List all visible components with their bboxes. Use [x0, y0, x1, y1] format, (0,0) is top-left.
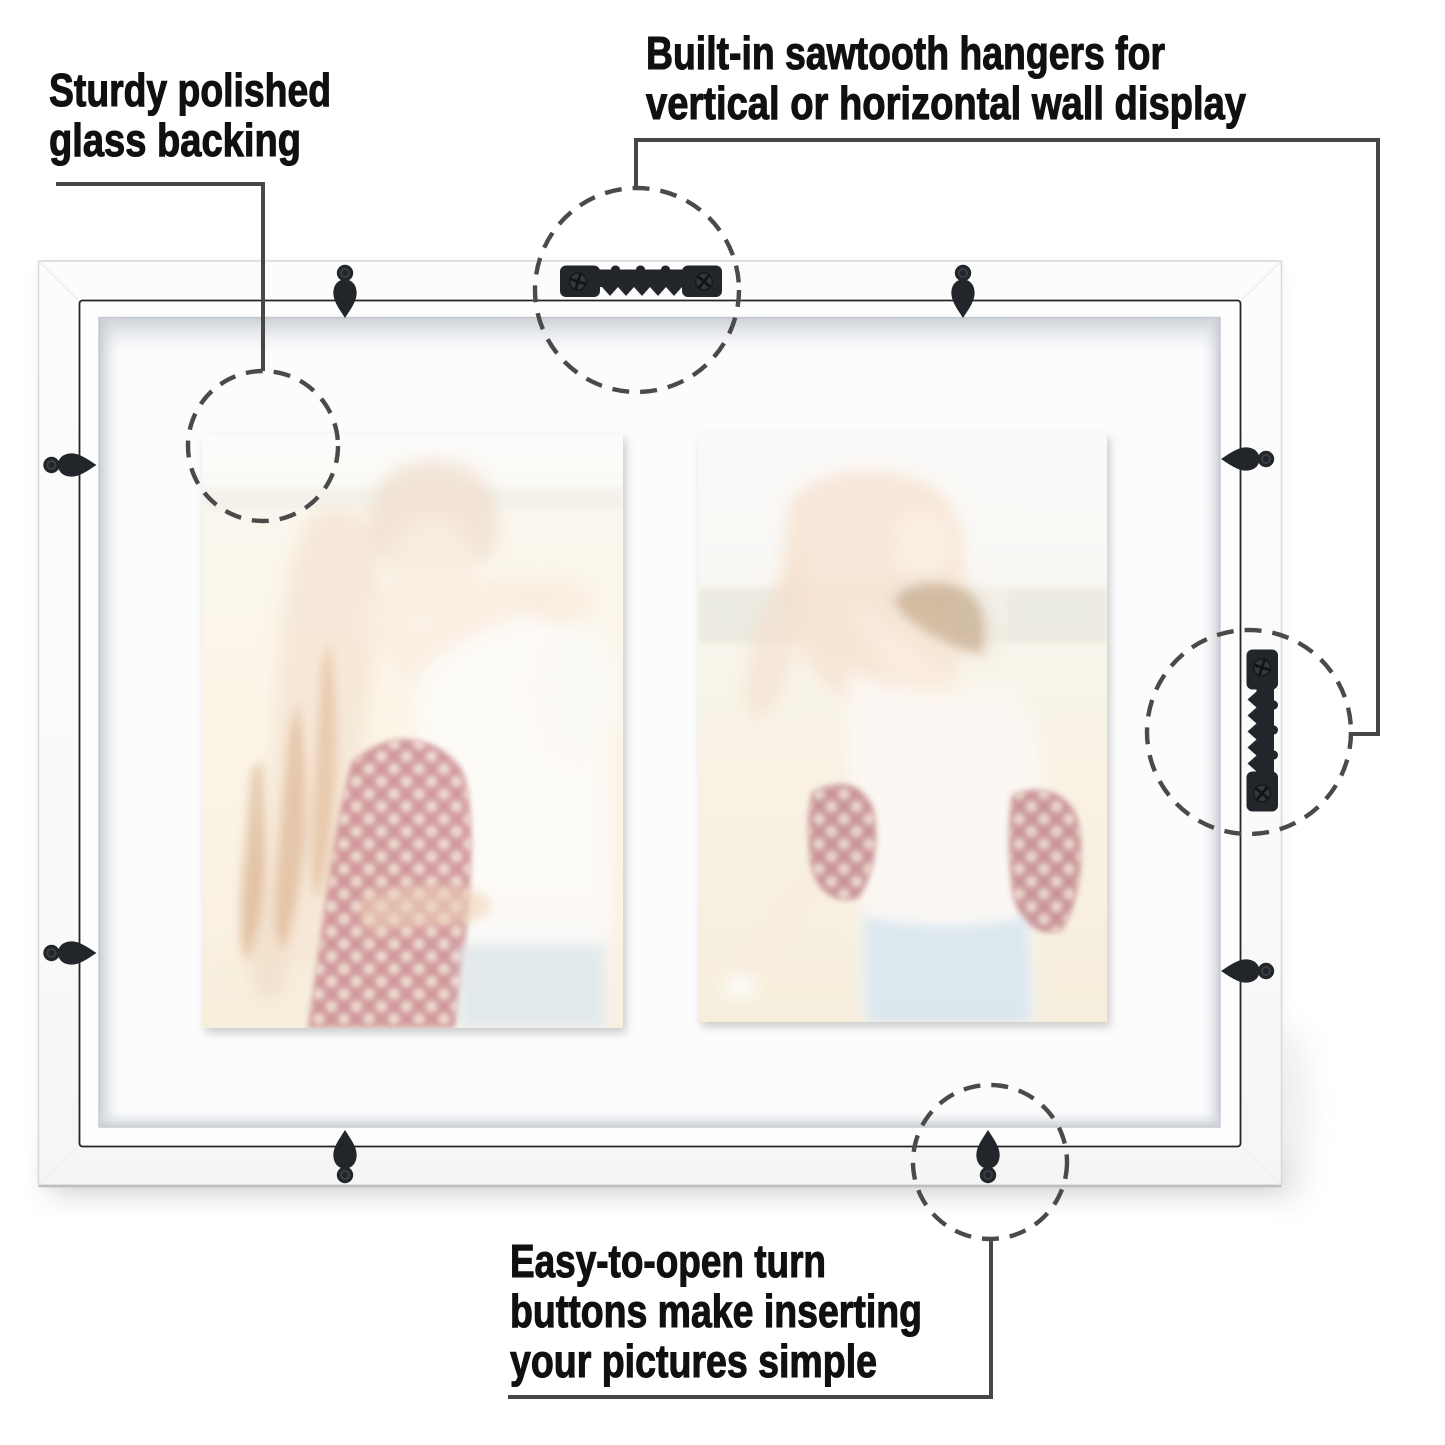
svg-text:Sturdy polished: Sturdy polished — [49, 64, 331, 116]
svg-text:Built-in sawtooth hangers for: Built-in sawtooth hangers for — [646, 27, 1165, 79]
svg-text:glass backing: glass backing — [49, 114, 301, 166]
svg-text:Easy-to-open turn: Easy-to-open turn — [510, 1235, 826, 1287]
svg-text:vertical or horizontal wall di: vertical or horizontal wall display — [646, 77, 1246, 129]
svg-text:your pictures simple: your pictures simple — [510, 1335, 877, 1387]
svg-text:buttons make inserting: buttons make inserting — [510, 1285, 922, 1337]
